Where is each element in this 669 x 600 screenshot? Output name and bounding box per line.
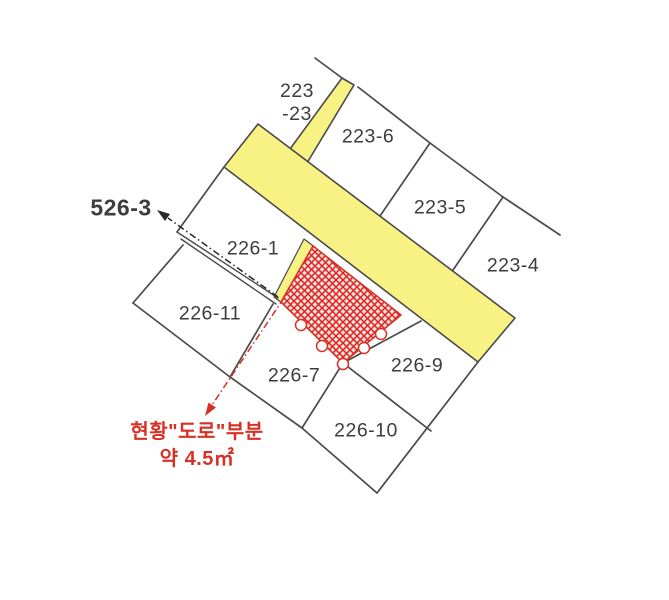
- parcel-label-223-4: 223-4: [487, 255, 539, 278]
- parcel-label-223-23-line1: 223: [280, 80, 314, 103]
- parcel-label-226-9: 226-9: [391, 355, 443, 378]
- parcel-label-226-11: 226-11: [179, 303, 241, 326]
- parcel-label-223-5: 223-5: [414, 197, 466, 220]
- map-geometry: [0, 0, 669, 600]
- boundary-223-23-top: [315, 58, 342, 78]
- boundary-point-marker: [376, 329, 387, 340]
- arrowhead-526-3-icon: [157, 210, 170, 221]
- boundary-226-11-northwest: [133, 245, 183, 303]
- boundary-point-marker: [359, 343, 370, 354]
- boundary-226-1-west: [177, 167, 224, 232]
- parcel-label-526-3: 526-3: [90, 197, 151, 220]
- parcel-label-226-7: 226-7: [268, 365, 320, 388]
- road-note-line2: 약 4.5㎡: [130, 446, 263, 473]
- road-note-line1: 현황"도로"부분: [130, 419, 263, 446]
- parcel-label-226-10: 226-10: [334, 420, 398, 443]
- parcel-label-223-23-line2: -23: [280, 103, 314, 126]
- parcel-label-223-6: 223-6: [342, 126, 394, 149]
- parcel-label-226-1: 226-1: [227, 238, 279, 261]
- cadastral-map: 223 -23 223-6 223-5 223-4 226-1 226-11 2…: [0, 0, 669, 600]
- boundary-point-marker: [296, 320, 307, 331]
- boundary-point-marker: [338, 359, 349, 370]
- parcel-label-223-23: 223 -23: [280, 80, 314, 126]
- arrowhead-road-note-icon: [205, 403, 216, 417]
- boundary-point-marker: [317, 341, 328, 352]
- road-note: 현황"도로"부분 약 4.5㎡: [130, 419, 263, 473]
